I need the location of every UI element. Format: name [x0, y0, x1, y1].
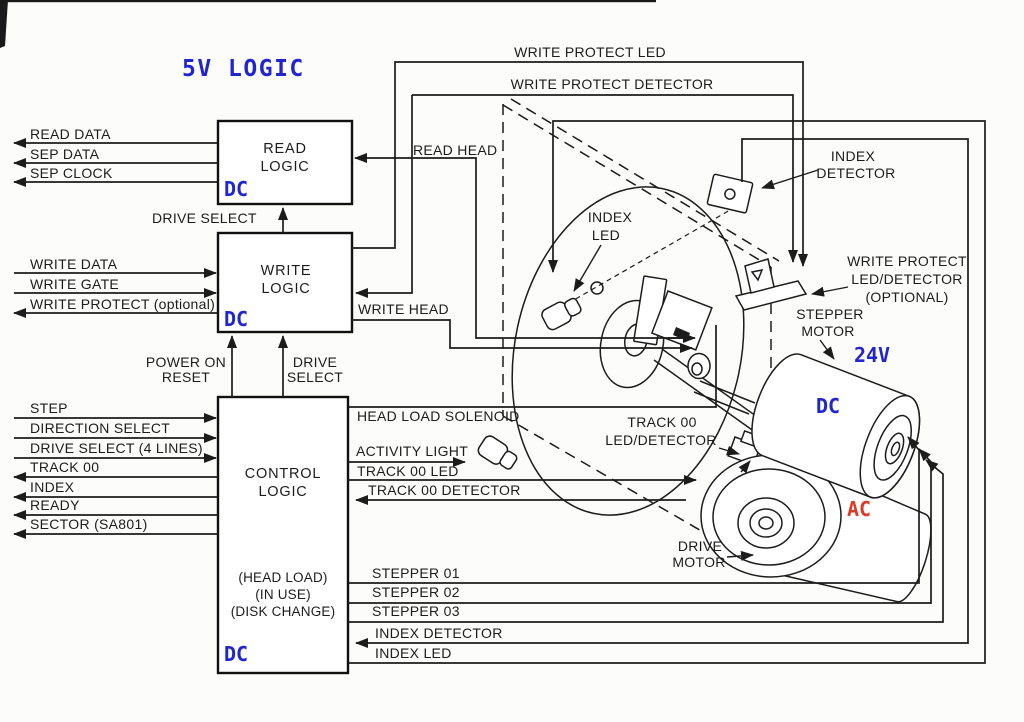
- internal-signal-label: READ HEAD: [413, 142, 497, 158]
- internal-signal-label: ACTIVITY LIGHT: [356, 443, 468, 459]
- write-logic-dc-label: DC: [224, 307, 248, 331]
- host-interface-wires: [14, 143, 218, 534]
- host-signal-label: READ DATA: [30, 126, 111, 142]
- write-logic-title-1: WRITE: [261, 263, 312, 279]
- control-logic-block: [218, 397, 348, 673]
- read-logic-title-1: READ: [263, 141, 307, 157]
- host-signal-label: INDEX: [30, 479, 75, 495]
- host-signal-label: WRITE PROTECT (optional): [30, 296, 215, 312]
- mech-callout-label: WRITE PROTECT: [847, 253, 967, 269]
- read-logic-dc-label: DC: [224, 177, 248, 201]
- internal-signal-label: STEPPER 01: [372, 565, 460, 581]
- page-title: 5V LOGIC: [182, 56, 305, 82]
- internal-signal-label: WRITE PROTECT DETECTOR: [511, 76, 714, 92]
- host-signal-label: STEP: [30, 400, 68, 416]
- index-led-component: [540, 294, 584, 331]
- host-signal-label: SECTOR (SA801): [30, 516, 148, 532]
- mech-callout-label: MOTOR: [672, 554, 725, 570]
- mech-callout-label: INDEX: [588, 209, 633, 225]
- host-signal-label: DRIVE SELECT (4 LINES): [30, 440, 203, 456]
- control-logic-sub-1: (HEAD LOAD): [238, 570, 327, 585]
- control-logic-title-1: CONTROL: [245, 466, 322, 482]
- mech-callout-label: DETECTOR: [816, 165, 895, 181]
- control-logic-sub-3: (DISK CHANGE): [231, 604, 336, 619]
- mech-callout-label: MOTOR: [801, 323, 854, 339]
- stepper-motor-pointer: [820, 340, 834, 359]
- mech-callout-label: INDEX: [831, 148, 876, 164]
- control-logic-title-2: LOGIC: [258, 484, 307, 500]
- write-logic-title-2: LOGIC: [261, 281, 310, 297]
- write-protect-detector-wire-b: [356, 95, 412, 293]
- floppy-drive-functional-diagram: 5V LOGIC READ LOGIC DC WRITE LOGIC DC CO…: [0, 0, 1024, 722]
- internal-signal-label: DRIVE: [293, 354, 337, 370]
- index-detector-component: [707, 174, 753, 213]
- diagram-canvas: 5V LOGIC READ LOGIC DC WRITE LOGIC DC CO…: [0, 0, 1024, 722]
- internal-signal-label: RESET: [162, 369, 210, 385]
- host-signal-label: DIRECTION SELECT: [30, 420, 170, 436]
- activity-light-component: [476, 434, 520, 473]
- internal-signal-label: STEPPER 03: [372, 603, 460, 619]
- mech-callout-label: TRACK 00: [627, 414, 696, 430]
- internal-signal-label: INDEX LED: [375, 645, 452, 661]
- read-logic-title-2: LOGIC: [260, 159, 309, 175]
- control-logic-dc-label: DC: [224, 642, 248, 666]
- internal-signal-label: SELECT: [287, 369, 343, 385]
- internal-signal-label: POWER ON: [146, 354, 226, 370]
- internal-signal-label: DRIVE SELECT: [152, 210, 257, 226]
- mech-callout-label: STEPPER: [796, 306, 863, 322]
- host-signal-label: READY: [30, 497, 80, 513]
- stepper-voltage-label: 24V: [854, 343, 890, 367]
- mech-callout-label: LED: [592, 227, 620, 243]
- internal-signal-label: TRACK 00 DETECTOR: [368, 482, 521, 498]
- internal-signal-label: INDEX DETECTOR: [375, 625, 503, 641]
- host-signal-label: WRITE GATE: [30, 276, 119, 292]
- internal-signal-label: STEPPER 02: [372, 584, 460, 600]
- internal-signal-label: TRACK 00 LED: [357, 463, 459, 479]
- control-logic-sub-2: (IN USE): [255, 587, 311, 602]
- host-signal-label: SEP CLOCK: [30, 165, 113, 181]
- write-protect-pointer: [812, 287, 848, 294]
- drive-motor-ac-label: AC: [847, 497, 871, 521]
- index-detector-pointer: [762, 170, 818, 188]
- internal-signal-label: WRITE PROTECT LED: [514, 44, 666, 60]
- internal-signal-label: WRITE HEAD: [358, 301, 449, 317]
- internal-signal-label: HEAD LOAD SOLENOID: [357, 408, 520, 424]
- scan-edge-artifact: [0, 0, 656, 2]
- host-signal-label: TRACK 00: [30, 459, 99, 475]
- host-signal-label: SEP DATA: [30, 146, 100, 162]
- mech-callout-label: (OPTIONAL): [865, 289, 948, 305]
- mech-callout-label: LED/DETECTOR: [851, 271, 962, 287]
- scan-corner-artifact: [0, 0, 8, 48]
- stepper-dc-label: DC: [816, 394, 840, 418]
- mech-callout-label: LED/DETECTOR: [605, 432, 716, 448]
- host-signal-label: WRITE DATA: [30, 256, 118, 272]
- mech-callout-label: DRIVE: [678, 538, 722, 554]
